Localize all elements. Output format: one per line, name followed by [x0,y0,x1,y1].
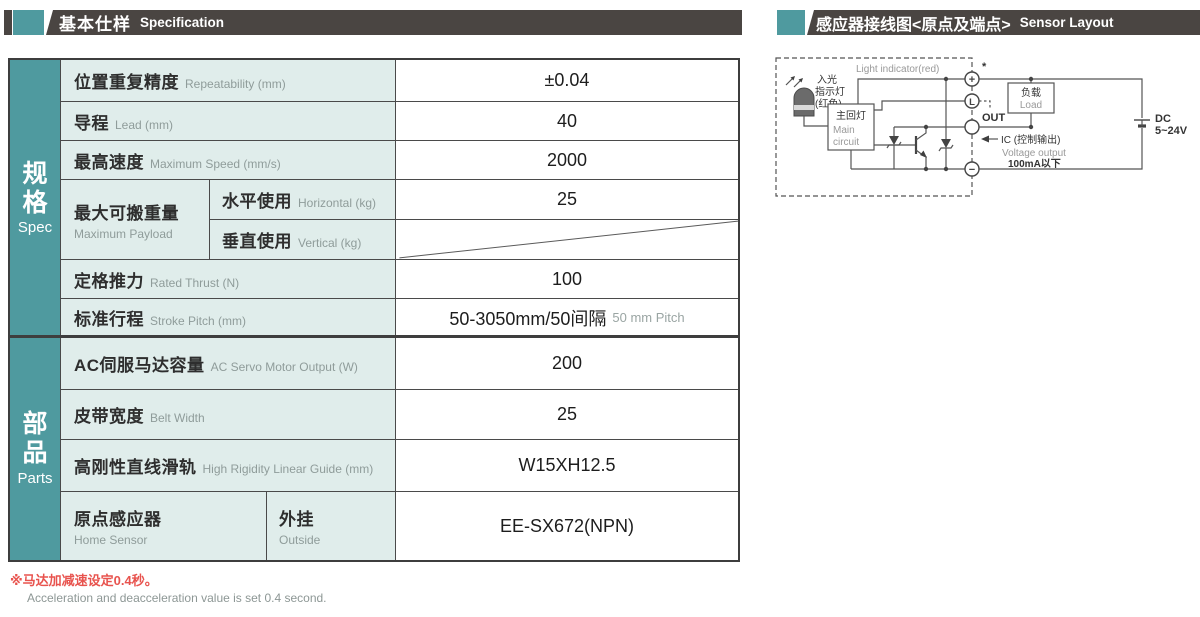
group-spec: 规格 Spec [10,60,60,336]
terminal-plus-sign: + [969,74,975,86]
row-label-vertical: 垂直使用Vertical (kg) [210,220,395,259]
header-accent-square [13,10,44,35]
group-parts-en: Parts [17,470,52,487]
indicator-label: 指示灯 [815,85,845,98]
row-value-belt-width: 25 [396,390,738,439]
acceleration-note-cn: ※马达加减速设定0.4秒。 [10,570,158,589]
row-value-home-sensor: EE-SX672(NPN) [396,492,738,560]
specification-header-bar: 基本仕样 Specification [46,10,742,35]
row-value-max-speed: 2000 [396,141,738,179]
specification-header: 基本仕样 Specification [4,10,742,35]
row-label-max-speed: 最高速度Maximum Speed (mm/s) [61,141,395,179]
group-spec-cn: 规格 [22,160,49,218]
stroke-pitch-value: 50-3050mm/50间隔 [449,305,606,331]
dc-label: DC [1155,113,1171,125]
asterisk-mark: * [982,61,987,73]
sensor-layout-header-bar: 感应器接线图<原点及端点> Sensor Layout [807,10,1200,35]
light-in-label: 入光 [817,73,837,86]
voltage-output-label: Voltage output [1002,148,1066,159]
terminal-l-dashed-lead [979,101,990,110]
current-limit-label: 100mA以下 [1008,158,1061,170]
junction-dot [924,125,928,129]
main-circuit-en1: Main [833,125,855,136]
main-circuit-cn: 主回灯 [836,110,866,122]
specification-title-cn: 基本仕样 [59,10,131,35]
group-parts: 部品 Parts [10,337,60,560]
row-label-stroke-pitch: 标准行程Stroke Pitch (mm) [61,299,395,336]
terminal-minus-sign: − [969,164,975,176]
wire-l [874,101,965,110]
row-label-horizontal: 水平使用Horizontal (kg) [210,180,395,219]
main-circuit-en2: circuit [833,137,859,148]
load-cn: 负载 [1021,86,1041,99]
row-label-home-sensor: 原点感应器 Home Sensor [61,492,266,560]
terminal-l-sign: L [969,97,975,108]
transistor-icon [874,127,927,169]
header-accent-square [777,10,805,35]
junction-dot [924,167,928,171]
junction-dot [944,77,948,81]
section-divider [10,335,738,338]
row-value-vertical-na [396,220,738,259]
junction-dot [944,167,948,171]
row-value-repeatability: ±0.04 [396,60,738,101]
sensor-layout-title-cn: 感应器接线图<原点及端点> [816,11,1011,35]
header-notch [4,10,12,35]
junction-dot [1029,77,1033,81]
acceleration-note-en: Acceleration and deacceleration value is… [27,591,327,605]
row-label-servo-output: AC伺服马达容量AC Servo Motor Output (W) [61,337,395,389]
row-label-belt-width: 皮带宽度Belt Width [61,390,395,439]
out-label: OUT [982,112,1006,124]
sensor-wiring-diagram: Light indicator(red) 入光 指示灯 (红色) 主回灯 Mai… [770,52,1200,214]
row-label-lead: 导程Lead (mm) [61,102,395,140]
not-applicable-diagonal [396,220,738,259]
dc-range-label: 5~24V [1155,125,1188,137]
stroke-pitch-value-en: 50 mm Pitch [612,310,684,325]
wire-plus [858,79,965,104]
row-value-horizontal: 25 [396,180,738,219]
terminal-out [965,120,979,134]
light-indicator-label: Light indicator(red) [856,64,939,75]
sensor-layout-title-en: Sensor Layout [1020,15,1114,30]
row-value-linear-guide: W15XH12.5 [396,440,738,491]
load-en: Load [1020,100,1042,111]
ic-arrow-icon [981,136,998,143]
specification-title-en: Specification [140,15,224,30]
row-value-lead: 40 [396,102,738,140]
row-label-outside: 外挂 Outside [267,492,395,560]
row-label-repeatability: 位置重复精度Repeatability (mm) [61,60,395,101]
row-label-linear-guide: 高刚性直线滑轨High Rigidity Linear Guide (mm) [61,440,395,491]
junction-dot [1029,125,1033,129]
row-value-stroke-pitch: 50-3050mm/50间隔 50 mm Pitch [396,299,738,336]
spec-sheet-page: 基本仕样 Specification 感应器接线图<原点及端点> Sensor … [0,0,1200,617]
battery-icon [1134,120,1150,126]
group-parts-cn: 部品 [22,410,49,468]
row-label-rated-thrust: 定格推力Rated Thrust (N) [61,260,395,298]
row-value-rated-thrust: 100 [396,260,738,298]
group-spec-en: Spec [18,219,52,236]
row-label-max-payload: 最大可搬重量 Maximum Payload [61,180,209,259]
spec-table: 规格 Spec 部品 Parts 位置重复精度Repeatability (mm… [8,58,740,562]
row-value-servo-output: 200 [396,337,738,389]
sensor-layout-header: 感应器接线图<原点及端点> Sensor Layout [777,10,1200,35]
zener-diode-2-icon [939,79,953,169]
ic-label: IC (控制输出) [1001,133,1060,146]
zener-diode-1-icon [887,127,901,169]
